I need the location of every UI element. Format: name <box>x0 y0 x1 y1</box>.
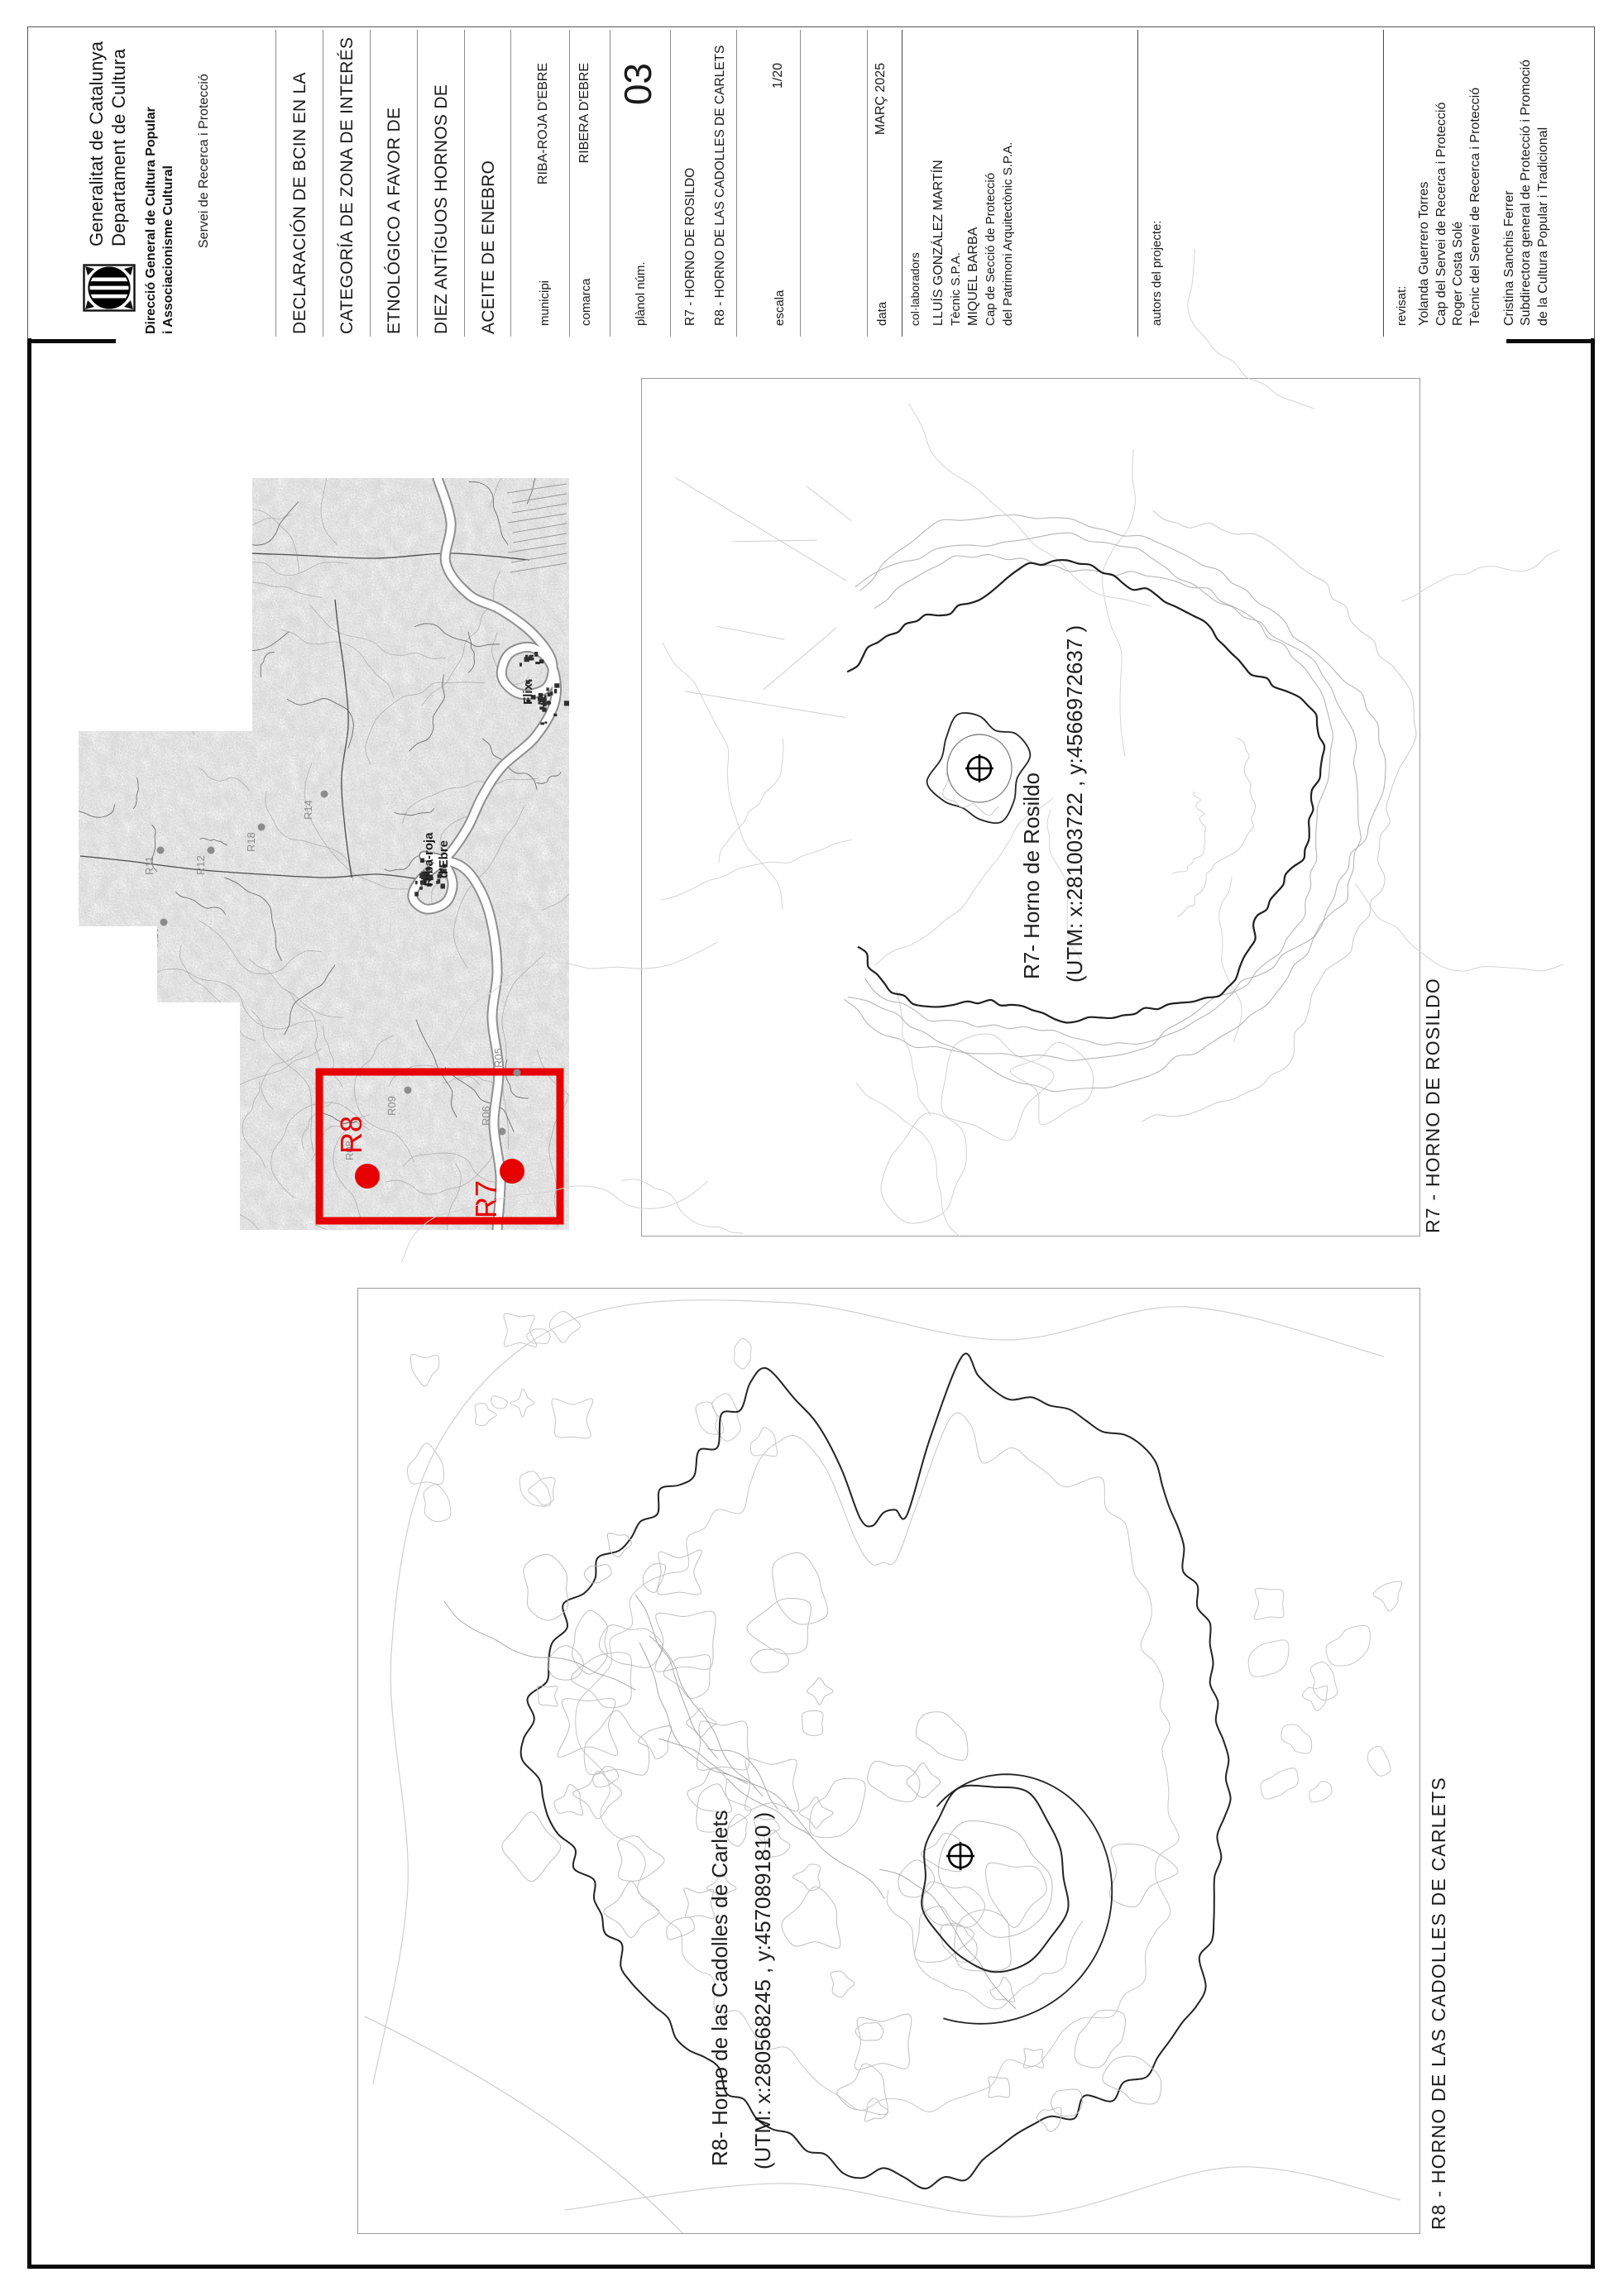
revisors-list: Yolanda Guerrero TorresCap del Servei de… <box>1416 60 1552 326</box>
map-gray-label-r09: R09 <box>385 1096 398 1116</box>
border-stub-top <box>27 339 116 343</box>
collaborator-line: del Patrimoni Arquitectònic S.P.A. <box>999 142 1017 326</box>
department-line1: Direcció General de Cultura Popular <box>142 107 160 334</box>
planol-num-label: plànol núm. <box>634 261 648 326</box>
comarca-label: comarca <box>579 278 593 326</box>
r7-utm-label: (UTM: x:281003722 , y:4566972637 ) <box>1062 625 1088 983</box>
r8-contour-drawing <box>358 1289 1419 2233</box>
title-block-rule <box>1137 30 1138 337</box>
title-block-rule <box>275 30 276 337</box>
map-gray-dot-r10 <box>160 919 168 926</box>
project-title-line: DIEZ ANTÍGUOS HORNOS DE <box>432 84 452 334</box>
municipi-label: municipi <box>538 280 552 326</box>
map-gray-dot-r09 <box>405 1087 412 1094</box>
collaborator-line: Cap de Secció de Protecció <box>982 142 999 326</box>
service-name: Servei de Recerca i Protecció <box>197 74 212 248</box>
project-title-line: DECLARACIÓN DE BCIN EN LA <box>290 72 310 334</box>
map-gray-label-r10: R10 <box>148 927 160 947</box>
collaborator-line: Tècnic S.P.A. <box>947 142 965 326</box>
map-gray-dot-r11 <box>157 847 165 854</box>
planol-num-value: 03 <box>615 63 660 105</box>
title-block-rule <box>800 30 801 337</box>
map-gray-dot-r06 <box>499 1128 506 1136</box>
comarca-value: RIBERA D'EBRE <box>577 63 592 163</box>
map-gray-dot-r14 <box>321 791 328 798</box>
map-gray-label-r12: R12 <box>194 855 207 875</box>
autors-label: autors del projecte: <box>1150 220 1164 326</box>
municipi-value: RIBA-ROJA D'EBRE <box>536 63 551 184</box>
r8-drawing-frame: R8- Horno de las Cadolles de Carlets (UT… <box>357 1288 1420 2234</box>
revisat-label: revisat: <box>1395 286 1409 326</box>
r7-caption: R7 - HORNO DE ROSILDO <box>1422 978 1444 1233</box>
map-gray-label-r05: R05 <box>492 1048 505 1068</box>
map-label-r8: R8 <box>334 1116 368 1154</box>
project-title-line: ACEITE DE ENEBRO <box>479 160 499 334</box>
map-gray-label-r11: R11 <box>143 856 156 875</box>
title-block-rule <box>370 30 371 337</box>
collaborators-label: col·laboradors <box>908 252 922 326</box>
project-title-line: ETNOLÓGICO A FAVOR DE <box>385 108 405 334</box>
escala-value: 1/20 <box>771 63 786 88</box>
title-block-rule <box>902 30 902 337</box>
border-stub-bottom <box>1506 339 1595 343</box>
title-block-rule <box>670 30 671 337</box>
drawing-sheet: Generalitat de Catalunya Departament de … <box>0 0 1623 2296</box>
r8-utm-label: (UTM: x:280568245 , y:4570891810 ) <box>750 1812 776 2169</box>
map-town-label: Riba-rojad'Ebre <box>422 832 451 887</box>
title-block-rule <box>464 30 465 337</box>
location-map-canvas: R14R09R05R06R08R10R11R12R18R8R7Riba-roja… <box>79 478 569 1230</box>
revisor-line: de la Cultura Popular i Tradicional <box>1535 60 1553 326</box>
revisor-line: Roger Costa Solé <box>1450 60 1467 326</box>
document-page: Generalitat de Catalunya Departament de … <box>0 0 1623 2296</box>
title-block-rule <box>417 30 418 337</box>
title-block-rule <box>569 30 570 337</box>
title-band-border <box>27 26 1595 340</box>
revisor-line: Subdirectora general de Protecció i Prom… <box>1518 60 1535 326</box>
title-block-rule <box>323 30 323 337</box>
escala-label: escala <box>773 290 787 326</box>
collaborator-line: MIQUEL BARBA <box>965 142 982 326</box>
generalitat-seal-icon <box>83 264 136 312</box>
r7-point-label: R7- Horno de Rosildo <box>1019 773 1045 979</box>
map-point-r7 <box>500 1159 524 1184</box>
title-block-rule <box>510 30 511 337</box>
map-town-label: Flix <box>521 682 535 704</box>
title-block-rule <box>1383 30 1384 337</box>
map-gray-label-r18: R18 <box>245 832 257 852</box>
revisor-line: Cap del Servei de Recerca i Protecció <box>1434 60 1451 326</box>
data-label: data <box>875 302 889 326</box>
project-title-line: CATEGORÍA DE ZONA DE INTERÉS <box>338 37 357 334</box>
org-name-line1: Generalitat de Catalunya <box>86 41 108 246</box>
sheet-item-r7: R7 - HORNO DE ROSILDO <box>683 168 698 326</box>
revisor-line: Tècnic del Servei de Recerca i Protecció <box>1467 60 1485 326</box>
department-name: Direcció General de Cultura Popular i As… <box>142 107 177 334</box>
map-gray-label-r06: R06 <box>480 1106 492 1126</box>
collaborators-list: LLUÍS GONZÁLEZ MARTÍNTècnic S.P.A.MIQUEL… <box>930 142 1017 326</box>
revisor-line: Cristina Sanchis Ferrer <box>1501 60 1519 326</box>
map-gray-dot-r05 <box>514 1069 521 1077</box>
org-name-line2: Departament de Cultura <box>108 49 130 246</box>
map-point-r8 <box>355 1164 380 1189</box>
revisor-line: Yolanda Guerrero Torres <box>1416 60 1434 326</box>
collaborator-line: LLUÍS GONZÁLEZ MARTÍN <box>930 142 947 326</box>
r8-point-label: R8- Horno de las Cadolles de Carlets <box>707 1810 733 2166</box>
title-block-rule <box>610 30 610 337</box>
sheet-item-r8: R8 - HORNO DE LAS CADOLLES DE CARLETS <box>713 45 728 326</box>
title-block-rule <box>736 30 737 337</box>
map-gray-dot-r18 <box>258 824 266 831</box>
r7-drawing-frame: R7- Horno de Rosildo (UTM: x:281003722 ,… <box>641 378 1420 1236</box>
revisor-line <box>1484 60 1501 326</box>
map-gray-dot-r12 <box>208 847 215 854</box>
location-map: R14R09R05R06R08R10R11R12R18R8R7Riba-roja… <box>79 478 569 1230</box>
map-gray-label-r14: R14 <box>302 800 314 820</box>
department-line2: i Associacionisme Cultural <box>160 107 177 334</box>
title-block-rule <box>867 30 868 337</box>
data-value: MARÇ 2025 <box>874 63 888 135</box>
r8-caption: R8 - HORNO DE LAS CADOLLES DE CARLETS <box>1428 1777 1450 2230</box>
